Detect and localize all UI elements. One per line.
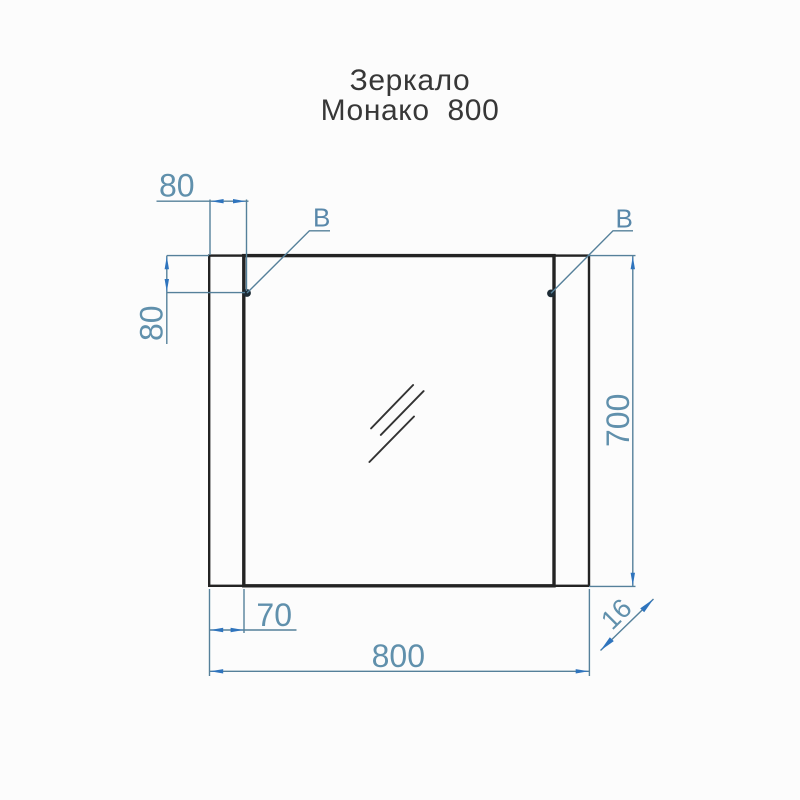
svg-text:700: 700 xyxy=(600,394,636,447)
svg-text:Зеркало: Зеркало xyxy=(350,64,471,97)
svg-text:B: B xyxy=(616,204,633,234)
svg-text:70: 70 xyxy=(256,597,292,633)
svg-text:16: 16 xyxy=(595,593,637,635)
svg-text:B: B xyxy=(313,203,330,233)
svg-text:80: 80 xyxy=(159,168,195,204)
svg-text:Монако 800: Монако 800 xyxy=(321,94,500,127)
svg-text:80: 80 xyxy=(134,305,170,341)
svg-text:800: 800 xyxy=(372,638,425,674)
